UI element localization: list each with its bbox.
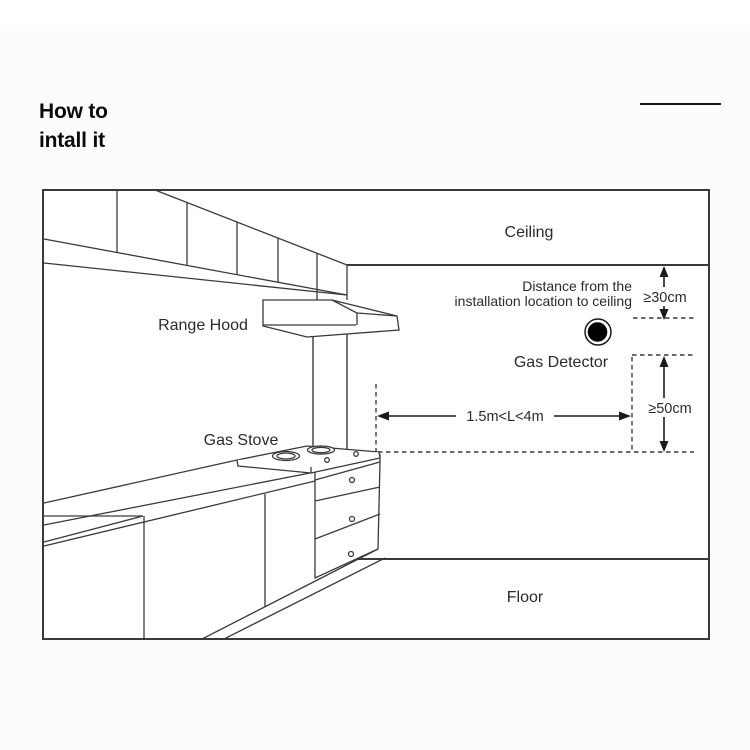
gas-detector-dot <box>585 319 611 345</box>
installation-diagram: ≥30cm ≥50cm 1.5m<L<4m Ceiling Floor Rang… <box>0 0 750 750</box>
distance-note-line1: Distance from the <box>522 278 632 294</box>
ceiling-clearance-value: ≥30cm <box>643 290 686 306</box>
drawer-knob <box>350 517 355 522</box>
horizontal-range-value: 1.5m<L<4m <box>466 409 543 425</box>
drawer-knob <box>350 478 355 483</box>
label-gas-detector: Gas Detector <box>514 354 609 371</box>
distance-note-line2: installation location to ceiling <box>455 293 632 309</box>
label-floor: Floor <box>507 589 544 606</box>
page: How to intall it <box>0 0 750 750</box>
label-ceiling: Ceiling <box>505 224 554 241</box>
label-gas-stove: Gas Stove <box>204 432 279 449</box>
stove-clearance-value: ≥50cm <box>648 401 691 417</box>
drawer-knob <box>349 552 354 557</box>
label-range-hood: Range Hood <box>158 317 248 334</box>
stove-knob <box>325 458 330 463</box>
stove-knob <box>354 452 359 457</box>
